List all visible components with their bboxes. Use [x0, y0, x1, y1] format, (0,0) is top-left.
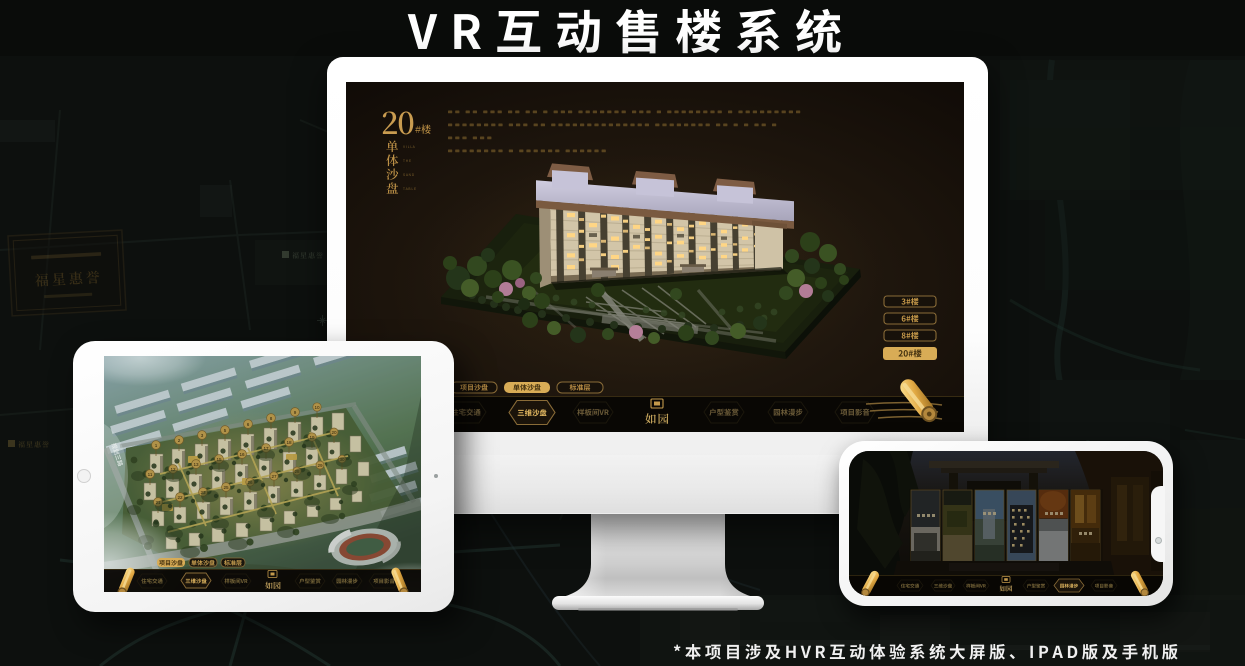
svg-text:T A B L E: T A B L E — [403, 187, 416, 191]
svg-text:T H E: T H E — [403, 159, 411, 163]
svg-text:S A N D: S A N D — [403, 173, 415, 177]
svg-text:V I L L A: V I L L A — [403, 145, 416, 149]
